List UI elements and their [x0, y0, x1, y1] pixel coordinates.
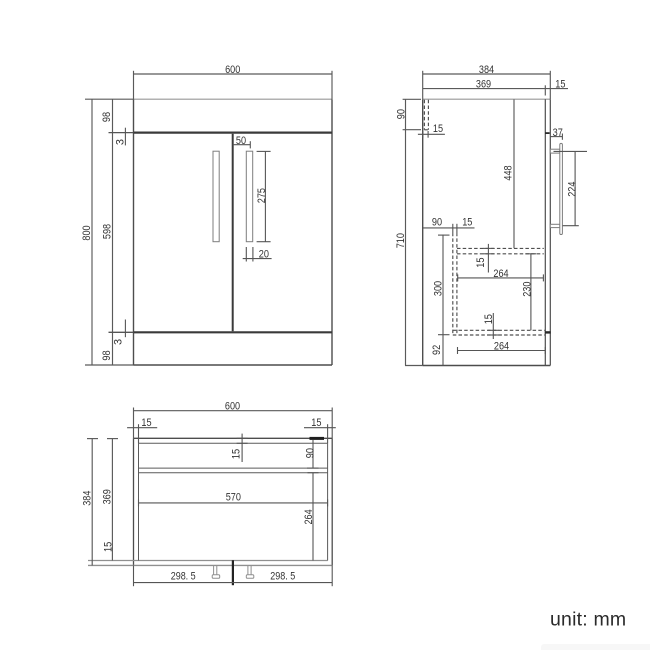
svg-text:98: 98: [101, 112, 113, 122]
svg-text:3: 3: [113, 339, 125, 345]
svg-text:448: 448: [503, 165, 515, 180]
svg-text:15: 15: [483, 314, 495, 324]
svg-text:300: 300: [432, 281, 444, 296]
svg-text:224: 224: [566, 182, 578, 197]
svg-text:264: 264: [493, 268, 508, 280]
svg-text:50: 50: [236, 135, 246, 147]
svg-text:15: 15: [141, 417, 151, 429]
svg-text:384: 384: [479, 64, 494, 76]
svg-text:230: 230: [522, 282, 534, 297]
svg-text:15: 15: [311, 417, 321, 429]
svg-text:unit: mm: unit: mm: [550, 608, 626, 630]
svg-text:20: 20: [259, 249, 269, 261]
svg-text:298. 5: 298. 5: [171, 571, 196, 583]
svg-text:15: 15: [475, 258, 487, 268]
svg-text:598: 598: [102, 224, 114, 239]
svg-text:90: 90: [395, 109, 407, 119]
svg-text:15: 15: [462, 216, 472, 228]
svg-text:37: 37: [553, 127, 563, 139]
svg-text:15: 15: [433, 123, 443, 135]
svg-text:384: 384: [81, 491, 93, 506]
svg-text:98: 98: [101, 350, 113, 360]
svg-text:90: 90: [304, 448, 316, 458]
svg-text:15: 15: [103, 542, 115, 552]
svg-text:264: 264: [494, 340, 509, 352]
svg-text:800: 800: [81, 225, 93, 240]
svg-text:369: 369: [476, 78, 491, 90]
svg-text:3: 3: [115, 139, 127, 145]
svg-text:15: 15: [230, 449, 242, 459]
svg-text:15: 15: [555, 78, 565, 90]
svg-text:570: 570: [226, 491, 241, 503]
svg-text:264: 264: [303, 509, 315, 524]
svg-text:92: 92: [431, 345, 443, 355]
svg-text:275: 275: [256, 188, 268, 203]
svg-text:600: 600: [225, 64, 240, 76]
svg-text:90: 90: [432, 216, 442, 228]
svg-text:710: 710: [395, 233, 407, 248]
svg-text:298. 5: 298. 5: [270, 571, 295, 583]
svg-text:600: 600: [225, 401, 240, 413]
svg-text:369: 369: [101, 489, 113, 504]
